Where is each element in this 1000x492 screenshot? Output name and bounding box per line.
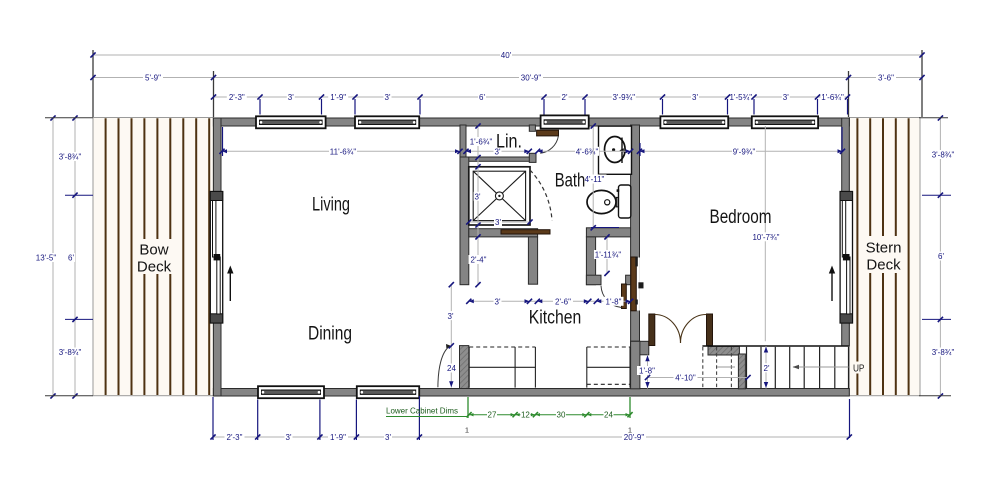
svg-text:10'-7¾": 10'-7¾"	[752, 233, 779, 242]
svg-text:Lower Cabinet Dims: Lower Cabinet Dims	[386, 407, 458, 416]
svg-text:1'-8": 1'-8"	[606, 298, 622, 307]
svg-text:40': 40'	[501, 51, 512, 60]
svg-text:2'-6": 2'-6"	[555, 298, 571, 307]
svg-text:Deck: Deck	[137, 259, 172, 276]
svg-text:1'-6¾": 1'-6¾"	[470, 138, 493, 147]
svg-text:1: 1	[628, 426, 632, 435]
svg-text:11'-6¾": 11'-6¾"	[330, 148, 357, 157]
svg-text:4'-6¾": 4'-6¾"	[576, 148, 599, 157]
svg-text:1'-11¾": 1'-11¾"	[595, 251, 622, 260]
svg-text:3'-9¾": 3'-9¾"	[612, 93, 635, 102]
svg-text:Living: Living	[312, 195, 350, 216]
svg-text:2'-4": 2'-4"	[471, 256, 487, 265]
svg-text:UP: UP	[853, 364, 865, 375]
svg-text:1'-5¾": 1'-5¾"	[729, 93, 752, 102]
svg-text:Deck: Deck	[866, 257, 901, 274]
svg-text:3': 3'	[288, 93, 294, 102]
svg-text:1: 1	[465, 426, 469, 435]
svg-text:27: 27	[488, 411, 497, 420]
svg-text:24: 24	[447, 364, 456, 373]
svg-text:1'-8": 1'-8"	[639, 367, 655, 376]
svg-text:3': 3'	[783, 93, 789, 102]
svg-text:3'-8¾": 3'-8¾"	[932, 151, 955, 160]
svg-text:3': 3'	[692, 93, 698, 102]
svg-text:13'-5": 13'-5"	[36, 254, 57, 263]
svg-text:5'-9": 5'-9"	[145, 74, 161, 83]
svg-text:Bath: Bath	[555, 171, 586, 192]
svg-text:30'-9": 30'-9"	[521, 74, 542, 83]
svg-text:3'-8¾": 3'-8¾"	[59, 348, 82, 357]
svg-text:6': 6'	[938, 252, 944, 261]
svg-text:3'-8¾": 3'-8¾"	[59, 153, 82, 162]
svg-text:Kitchen: Kitchen	[529, 308, 582, 329]
svg-text:4'-10": 4'-10"	[675, 374, 696, 383]
svg-text:2': 2'	[562, 93, 568, 102]
svg-text:Stern: Stern	[866, 240, 902, 257]
svg-text:30: 30	[557, 411, 566, 420]
svg-text:Bow: Bow	[139, 242, 168, 259]
svg-text:Lin.: Lin.	[496, 132, 522, 153]
svg-text:3': 3'	[286, 433, 292, 442]
svg-text:4'-11": 4'-11"	[585, 175, 605, 184]
svg-text:Dining: Dining	[308, 324, 352, 345]
svg-text:20'-9": 20'-9"	[624, 433, 645, 442]
svg-text:6': 6'	[479, 93, 485, 102]
svg-text:2': 2'	[764, 364, 770, 373]
svg-text:9'-9¾": 9'-9¾"	[733, 148, 756, 157]
svg-text:3'-8¾": 3'-8¾"	[932, 348, 955, 357]
svg-text:1'-9": 1'-9"	[330, 433, 346, 442]
svg-text:3': 3'	[475, 193, 481, 202]
svg-text:3'-6": 3'-6"	[878, 74, 894, 83]
svg-text:6': 6'	[68, 254, 74, 263]
svg-text:3': 3'	[495, 218, 501, 227]
svg-text:3': 3'	[495, 298, 501, 307]
svg-text:1'-9": 1'-9"	[330, 93, 346, 102]
svg-text:24: 24	[604, 411, 613, 420]
svg-text:Bedroom: Bedroom	[710, 207, 772, 228]
svg-text:3': 3'	[385, 93, 391, 102]
svg-text:1'-6¾": 1'-6¾"	[821, 93, 844, 102]
svg-text:3': 3'	[448, 312, 454, 321]
svg-text:2'-3": 2'-3"	[227, 433, 243, 442]
svg-text:2'-3": 2'-3"	[229, 93, 245, 102]
svg-text:3': 3'	[385, 433, 391, 442]
svg-text:12: 12	[521, 411, 530, 420]
